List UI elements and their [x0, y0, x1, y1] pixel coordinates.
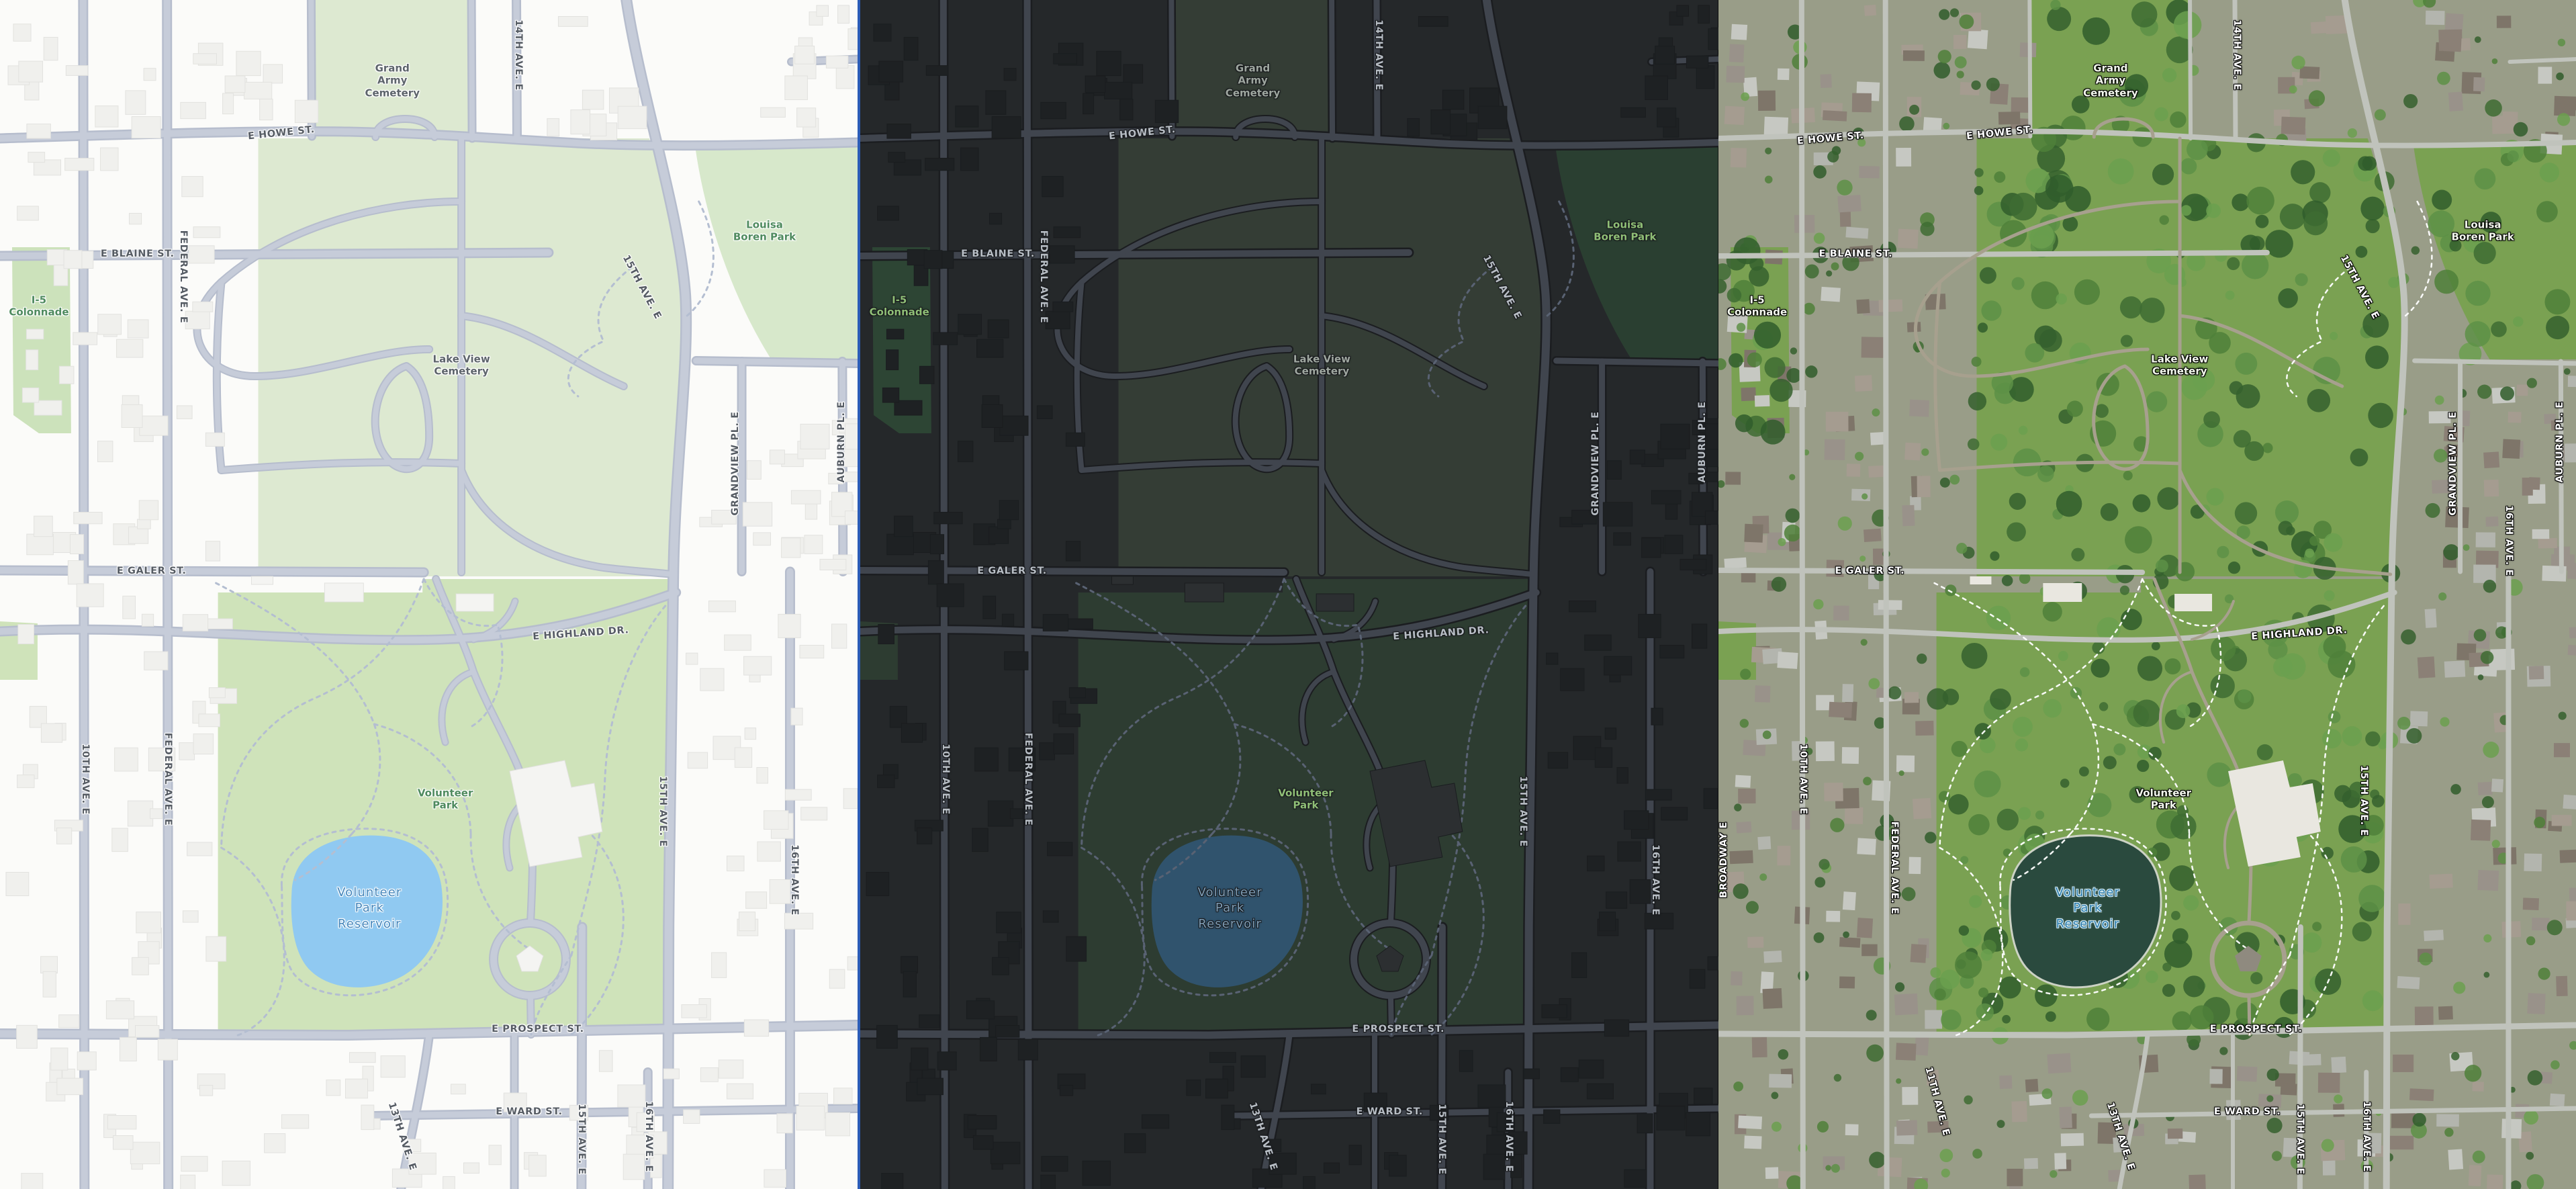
satellite-map-panel[interactable]: GrandArmyCemeteryE HOWE ST.E HOWE ST.14T… — [1718, 0, 2576, 1189]
map-graphics-dark — [860, 0, 1718, 1189]
light-map-panel[interactable]: GrandArmyCemeteryE HOWE ST.14TH AVE. EE … — [0, 0, 858, 1189]
dark-map-panel[interactable]: GrandArmyCemeteryE HOWE ST.14TH AVE. EE … — [858, 0, 1718, 1189]
map-graphics-satellite — [1718, 0, 2576, 1189]
map-graphics-light — [0, 0, 858, 1189]
map-style-comparison: GrandArmyCemeteryE HOWE ST.14TH AVE. EE … — [0, 0, 2576, 1189]
